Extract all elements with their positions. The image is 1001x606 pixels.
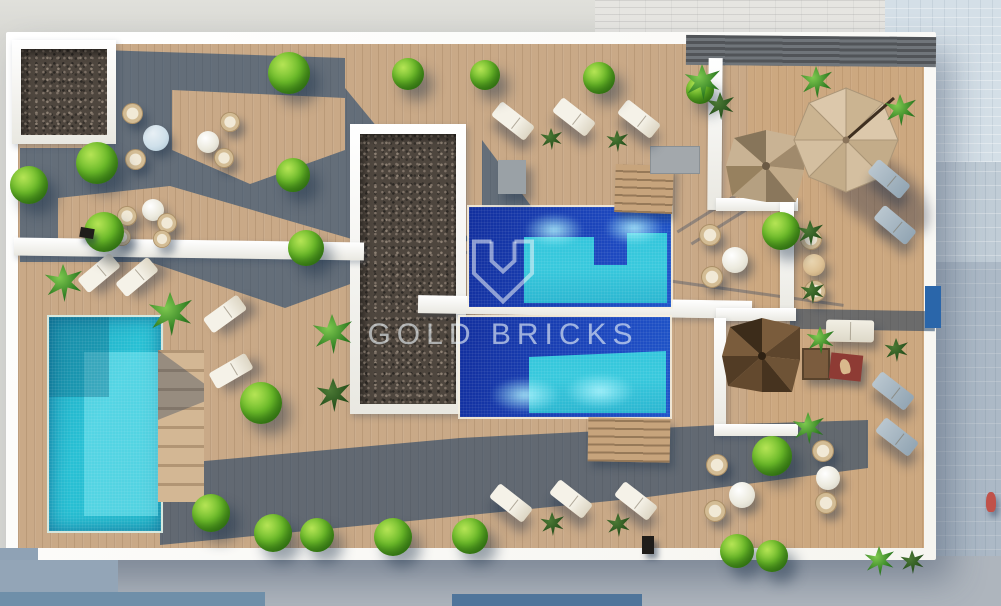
bush [276, 158, 310, 192]
wicker-chair [812, 440, 834, 462]
wicker-chair [701, 266, 723, 288]
lower-glass-band-left [0, 592, 265, 606]
bush [752, 436, 792, 476]
main-pool-lower [458, 315, 672, 419]
bush [720, 534, 754, 568]
sofa-side-table [802, 348, 830, 380]
main-pool-upper [467, 205, 673, 309]
bush [762, 212, 800, 250]
round-table [197, 131, 219, 153]
stairs-shadow [158, 350, 204, 502]
round-table [729, 482, 755, 508]
bush [756, 540, 788, 572]
bush [470, 60, 500, 90]
wicker-chair [214, 148, 234, 168]
bush [583, 62, 615, 94]
rooftop-aerial-render: GOLD BRICKS [0, 0, 1001, 606]
bush [10, 166, 48, 204]
pool-stairs-lower [588, 417, 671, 462]
bush [76, 142, 118, 184]
bush [240, 382, 282, 424]
pool-tile-texture [49, 317, 161, 531]
pool-tile-texture [469, 207, 671, 307]
wicker-chair [125, 149, 146, 170]
bush [374, 518, 412, 556]
spiral-staircase-lower [722, 318, 802, 394]
bush [392, 58, 424, 90]
wicker-chair [706, 454, 728, 476]
outdoor-sofa [826, 320, 874, 343]
concrete-pillar [498, 160, 526, 194]
wicker-chair [815, 492, 837, 514]
round-table [816, 466, 840, 490]
wicker-chair [220, 112, 240, 132]
stairs-left-terrace [158, 350, 204, 502]
lower-glass-band-center [452, 594, 642, 606]
bush [268, 52, 310, 94]
glass-balustrade [925, 286, 941, 328]
wicker-chair [122, 103, 143, 124]
round-table-tan [803, 254, 825, 276]
bush [452, 518, 488, 554]
wall-horizontal-br [714, 424, 798, 436]
concrete-plinth [650, 146, 700, 174]
bush [192, 494, 230, 532]
wicker-chair [704, 500, 726, 522]
neighbor-stair-slats [686, 35, 936, 67]
deck-speaker [642, 536, 654, 554]
gravel-planter-square [21, 49, 107, 135]
pool-tile-texture [460, 317, 670, 417]
round-table [722, 247, 748, 273]
gravel-planter-long [360, 134, 456, 404]
wicker-chair [153, 230, 171, 248]
wicker-chair [699, 224, 721, 246]
bush [288, 230, 324, 266]
private-pool-left [47, 315, 163, 533]
bush [254, 514, 292, 552]
round-table [143, 125, 169, 151]
bush [300, 518, 334, 552]
pedestrian [986, 492, 996, 512]
